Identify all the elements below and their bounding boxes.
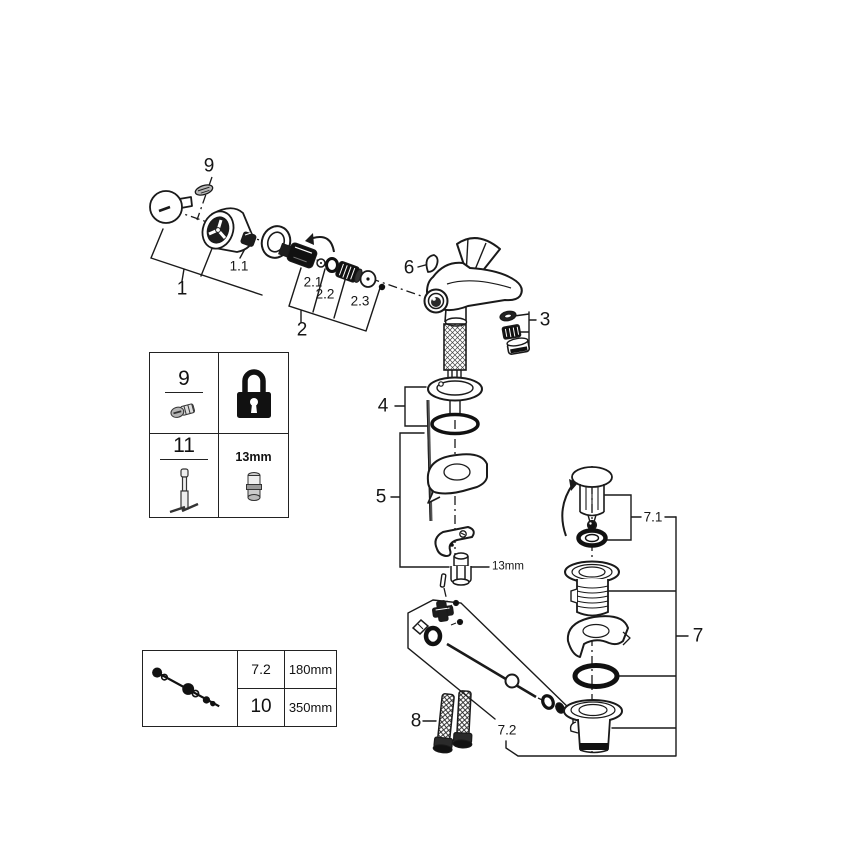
callout-2-2: 2.2 <box>316 287 335 301</box>
tool-table-socket-cell: 13mm <box>219 434 288 517</box>
drain-wedge-clamp <box>568 616 630 657</box>
drain-lower-body <box>564 700 622 753</box>
clamp-bracket <box>435 527 473 556</box>
callout-5: 5 <box>376 488 387 507</box>
o-ring-2-2 <box>327 259 338 272</box>
callout-3: 3 <box>540 311 551 330</box>
callout-7-2: 7.2 <box>498 723 517 737</box>
padlock-icon <box>234 366 274 420</box>
callout-1-1: 1.1 <box>230 259 249 273</box>
drain-plug <box>572 467 612 529</box>
rod-length-350: 350mm <box>285 689 336 727</box>
spindle-2-3 <box>335 261 364 285</box>
pop-up-rod-icon <box>148 659 232 719</box>
callout-4: 4 <box>378 397 389 416</box>
drain-o-ring <box>575 666 617 687</box>
rod-length-rows: 7.2 180mm 10 350mm <box>238 651 336 726</box>
mounting-pin-tool-icon <box>167 467 201 517</box>
tool-table-ref-cell-2: 11 <box>150 434 219 517</box>
callout-7-1: 7.1 <box>644 510 663 524</box>
part-ref-11: 11 <box>160 434 208 460</box>
washer-small <box>317 259 325 267</box>
rod-ref-7-2: 7.2 <box>238 651 285 689</box>
tool-table-lock-cell <box>219 353 288 434</box>
check-ball <box>379 284 385 290</box>
callout-2-3: 2.3 <box>351 294 370 308</box>
lever-horn <box>426 255 437 272</box>
flex-hoses <box>433 691 475 754</box>
nut-size-label: 13mm <box>492 561 524 573</box>
tool-reference-table: 9 11 <box>149 352 289 518</box>
callout-7: 7 <box>693 627 704 646</box>
callout-8: 8 <box>411 712 422 731</box>
grub-screw <box>194 183 214 197</box>
rod-length-table: 7.2 180mm 10 350mm <box>142 650 337 727</box>
exploded-diagram-art <box>0 0 868 868</box>
grub-screw-icon <box>168 400 200 420</box>
stabilizer-plate <box>428 454 487 493</box>
socket-size-label: 13mm <box>235 450 271 464</box>
threaded-shank <box>444 324 466 416</box>
rod-length-180: 180mm <box>285 651 336 689</box>
washer-disc <box>361 271 376 287</box>
drain-upper-body <box>565 562 619 616</box>
parts-diagram-page: 9 1 1.1 2 2.1 2.2 2.3 6 3 4 5 13mm 7.1 7… <box>0 0 868 868</box>
rod-ref-10: 10 <box>238 689 285 727</box>
tool-table-ref-cell: 9 <box>150 353 219 434</box>
rod-icon-cell <box>143 651 238 726</box>
callout-6: 6 <box>404 259 415 278</box>
pop-up-actuator <box>413 574 566 715</box>
fixing-nut <box>451 553 471 585</box>
handle-cap <box>150 191 192 223</box>
socket-icon <box>243 471 265 501</box>
pop-up-rod <box>447 644 536 697</box>
callout-1: 1 <box>177 280 188 299</box>
plug-seal-ring <box>579 531 606 546</box>
part-ref-9: 9 <box>165 367 203 393</box>
handle-knob <box>197 207 253 253</box>
callout-9: 9 <box>204 157 215 176</box>
plug-rotation-arrow <box>562 479 578 536</box>
callout-2: 2 <box>297 321 308 340</box>
escutcheon-ring <box>428 378 482 401</box>
